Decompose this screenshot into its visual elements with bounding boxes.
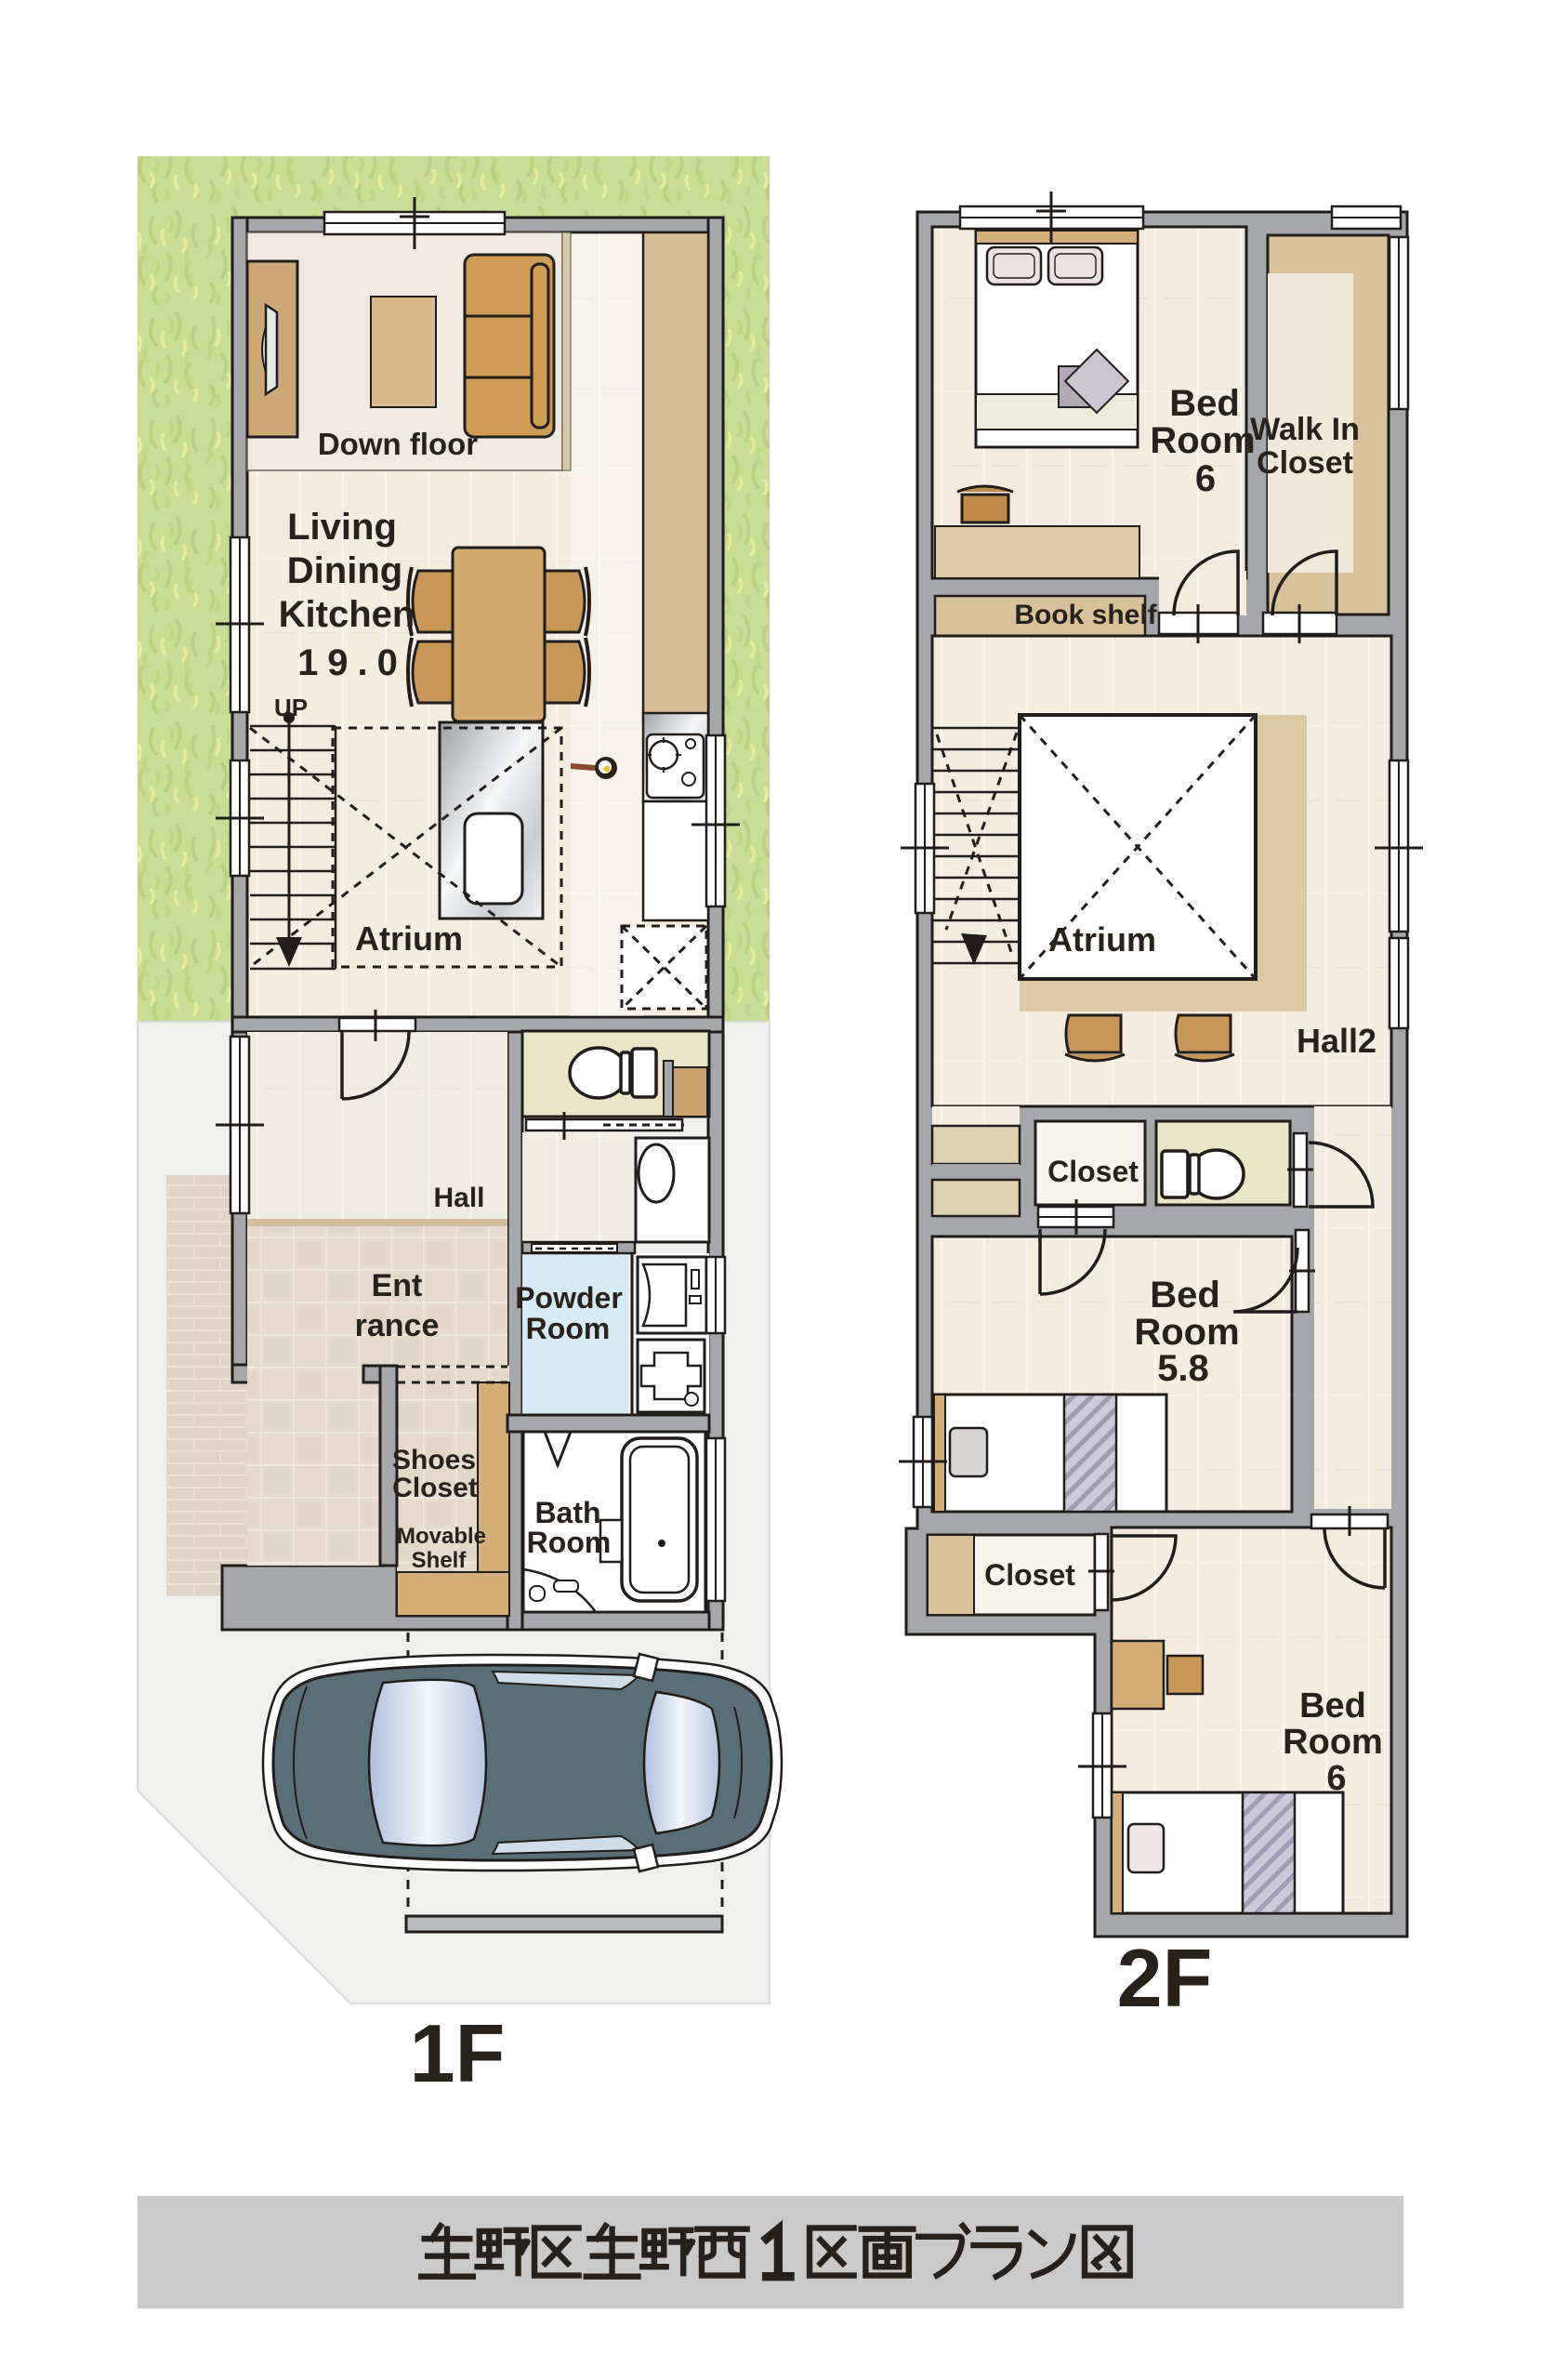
svg-text:Down floor: Down floor: [318, 427, 478, 461]
svg-text:Room: Room: [1134, 1312, 1239, 1353]
svg-text:Living: Living: [287, 507, 397, 548]
svg-text:Movable: Movable: [397, 1524, 486, 1549]
svg-text:Closet: Closet: [1257, 445, 1353, 481]
svg-text:Closet: Closet: [984, 1558, 1075, 1592]
svg-text:Walk In: Walk In: [1250, 412, 1360, 447]
svg-text:Room: Room: [1283, 1723, 1383, 1762]
svg-text:UP: UP: [274, 694, 308, 721]
svg-text:6: 6: [1326, 1759, 1346, 1798]
svg-text:Bath: Bath: [534, 1496, 600, 1529]
svg-text:Ent: Ent: [372, 1268, 423, 1303]
svg-text:Bed: Bed: [1299, 1686, 1366, 1725]
svg-text:Book shelf: Book shelf: [1014, 600, 1157, 630]
svg-text:Bed: Bed: [1150, 1275, 1220, 1316]
svg-text:6: 6: [1195, 458, 1216, 499]
svg-text:Room: Room: [527, 1526, 612, 1559]
svg-text:Powder: Powder: [515, 1281, 623, 1315]
svg-text:Atrium: Atrium: [355, 919, 463, 958]
svg-text:Hall2: Hall2: [1297, 1022, 1376, 1060]
svg-text:Kitchen: Kitchen: [279, 594, 415, 635]
svg-text:Dining: Dining: [287, 550, 402, 591]
svg-text:Room: Room: [526, 1312, 611, 1345]
svg-text:2F: 2F: [1117, 1932, 1213, 2024]
svg-text:5.8: 5.8: [1157, 1348, 1209, 1389]
svg-text:Hall: Hall: [433, 1183, 484, 1213]
svg-text:Shelf: Shelf: [412, 1548, 468, 1573]
svg-text:Atrium: Atrium: [1048, 920, 1156, 959]
svg-text:Bed: Bed: [1169, 383, 1240, 424]
svg-text:Room: Room: [1150, 420, 1255, 461]
svg-text:Shoes: Shoes: [392, 1445, 476, 1475]
svg-text:19.0: 19.0: [297, 642, 407, 683]
svg-text:rance: rance: [355, 1308, 440, 1343]
svg-text:Closet: Closet: [392, 1473, 478, 1503]
svg-text:1F: 1F: [410, 2007, 506, 2099]
svg-text:Closet: Closet: [1047, 1155, 1139, 1188]
